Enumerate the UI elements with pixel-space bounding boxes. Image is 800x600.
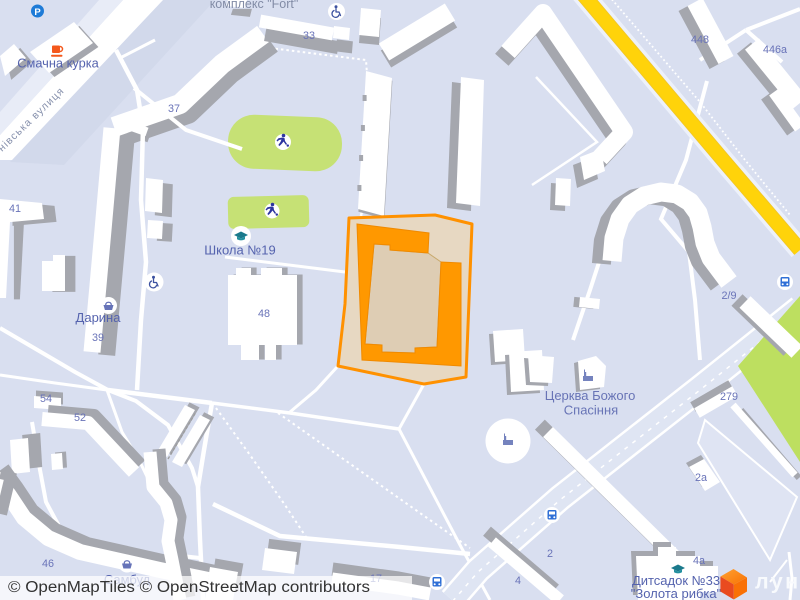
svg-text:39: 39 (92, 332, 104, 344)
svg-text:4а: 4а (693, 555, 705, 567)
svg-text:Церква Божого: Церква Божого (545, 388, 636, 403)
svg-text:P: P (34, 7, 41, 18)
svg-text:279: 279 (720, 391, 738, 403)
svg-text:2/9: 2/9 (721, 290, 736, 302)
svg-text:37: 37 (168, 103, 180, 115)
svg-text:448: 448 (691, 34, 709, 46)
svg-text:Спасіння: Спасіння (564, 403, 618, 418)
svg-text:Школа №19: Школа №19 (204, 243, 276, 258)
svg-text:41: 41 (9, 203, 21, 215)
svg-text:33: 33 (303, 30, 315, 42)
svg-text:2: 2 (547, 548, 553, 560)
svg-text:Смачна курка: Смачна курка (17, 56, 99, 71)
svg-text:46: 46 (42, 558, 54, 570)
svg-text:Дарина: Дарина (76, 310, 122, 325)
svg-text:52: 52 (74, 412, 86, 424)
svg-text:лун: лун (755, 570, 800, 594)
svg-text:54: 54 (40, 393, 52, 405)
svg-text:48: 48 (258, 308, 270, 320)
svg-text:© OpenMapTiles © OpenStreetMap: © OpenMapTiles © OpenStreetMap contribut… (8, 579, 370, 596)
svg-text:"Золота рибка": "Золота рибка" (631, 586, 722, 600)
svg-text:446а: 446а (763, 44, 787, 56)
svg-text:комплекс "Fort": комплекс "Fort" (210, 0, 299, 11)
svg-text:4: 4 (515, 575, 521, 587)
svg-text:2а: 2а (695, 472, 707, 484)
